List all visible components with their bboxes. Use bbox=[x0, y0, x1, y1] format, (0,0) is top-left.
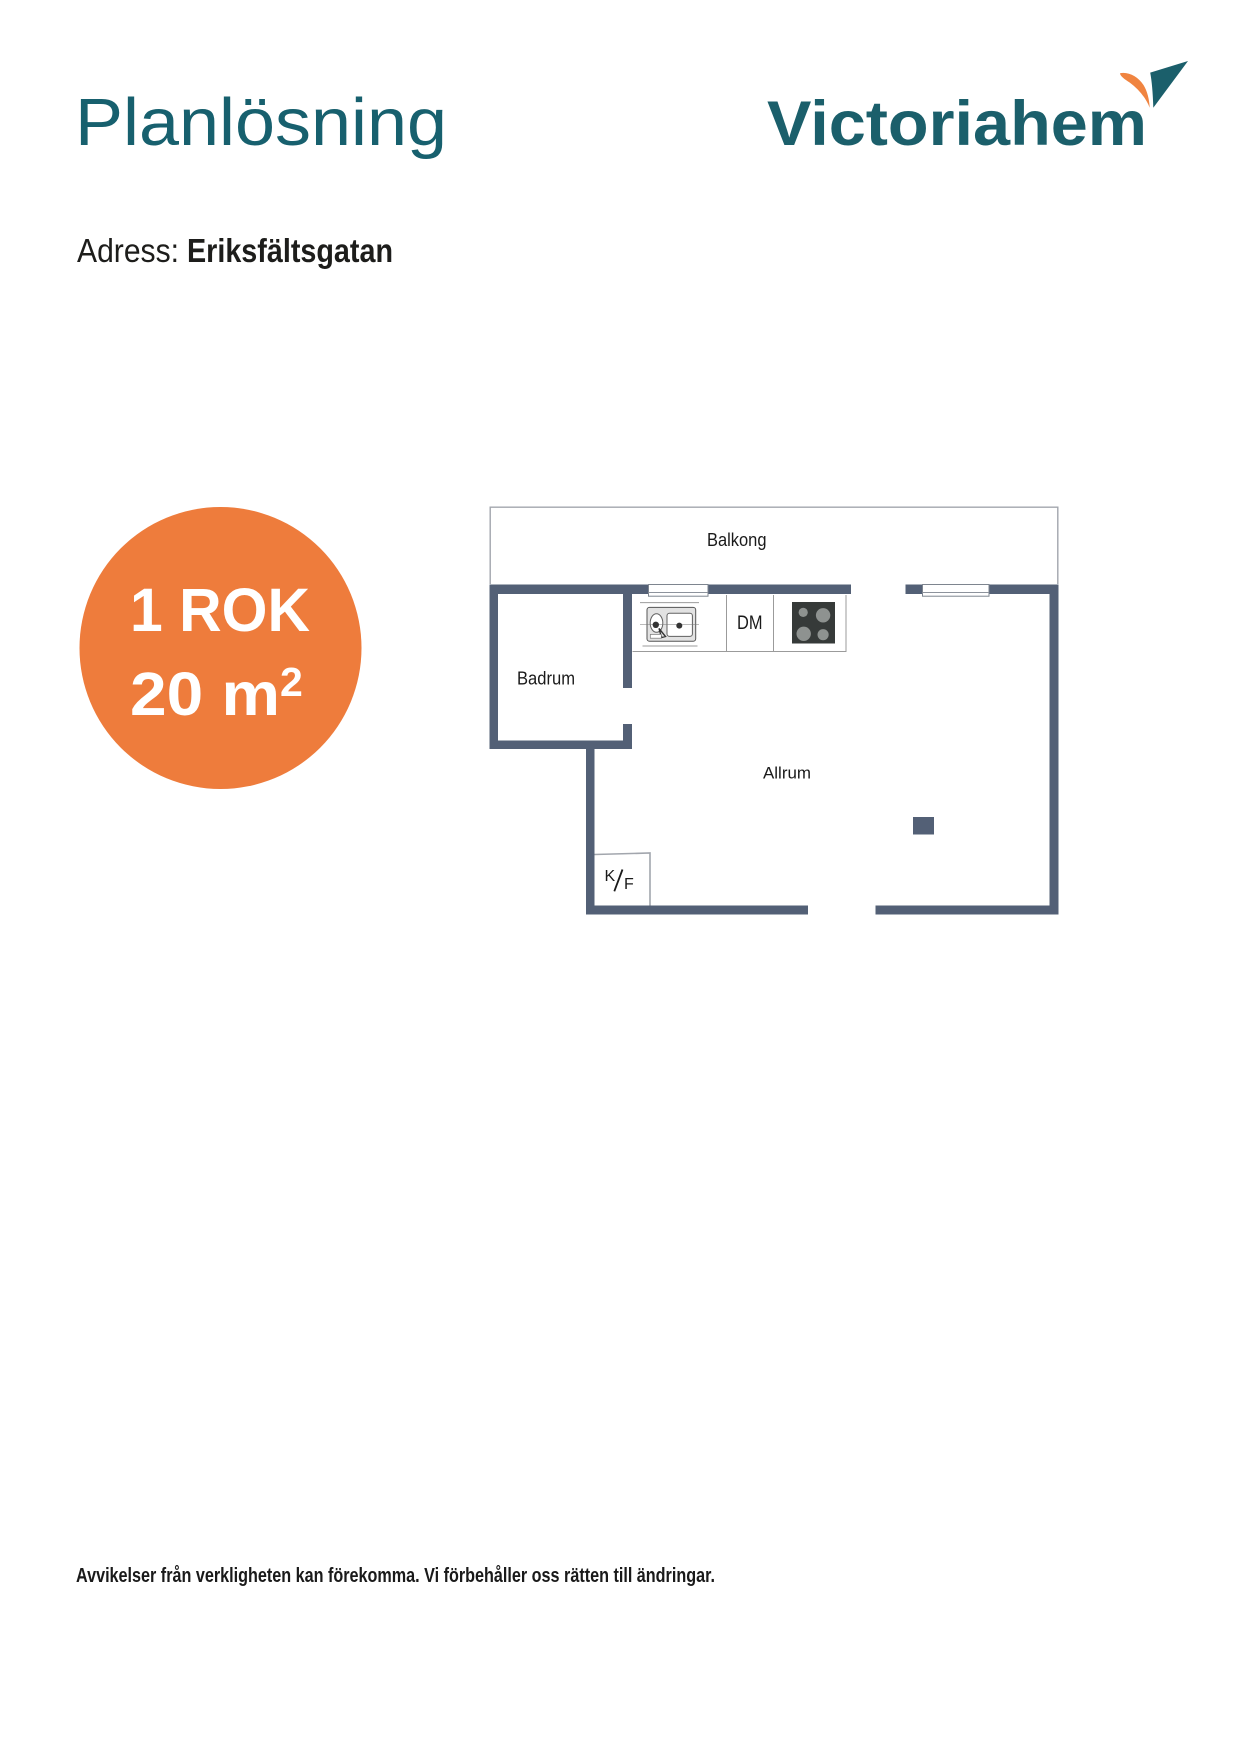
svg-text:Planlösning: Planlösning bbox=[75, 85, 447, 160]
svg-text:Avvikelser från verkligheten k: Avvikelser från verkligheten kan förekom… bbox=[76, 1564, 715, 1587]
svg-text:Adress:Eriksfältsgatan: Adress:Eriksfältsgatan bbox=[77, 232, 393, 269]
svg-text:K: K bbox=[605, 868, 616, 885]
svg-text:F: F bbox=[624, 876, 634, 893]
svg-text:20 m2: 20 m2 bbox=[130, 659, 303, 728]
svg-text:Victoriahem: Victoriahem bbox=[767, 89, 1147, 159]
svg-text:Balkong: Balkong bbox=[707, 530, 767, 550]
svg-text:1 ROK: 1 ROK bbox=[130, 576, 310, 644]
svg-text:DM: DM bbox=[737, 613, 763, 634]
svg-text:Allrum: Allrum bbox=[763, 764, 811, 783]
svg-text:Badrum: Badrum bbox=[517, 669, 575, 689]
